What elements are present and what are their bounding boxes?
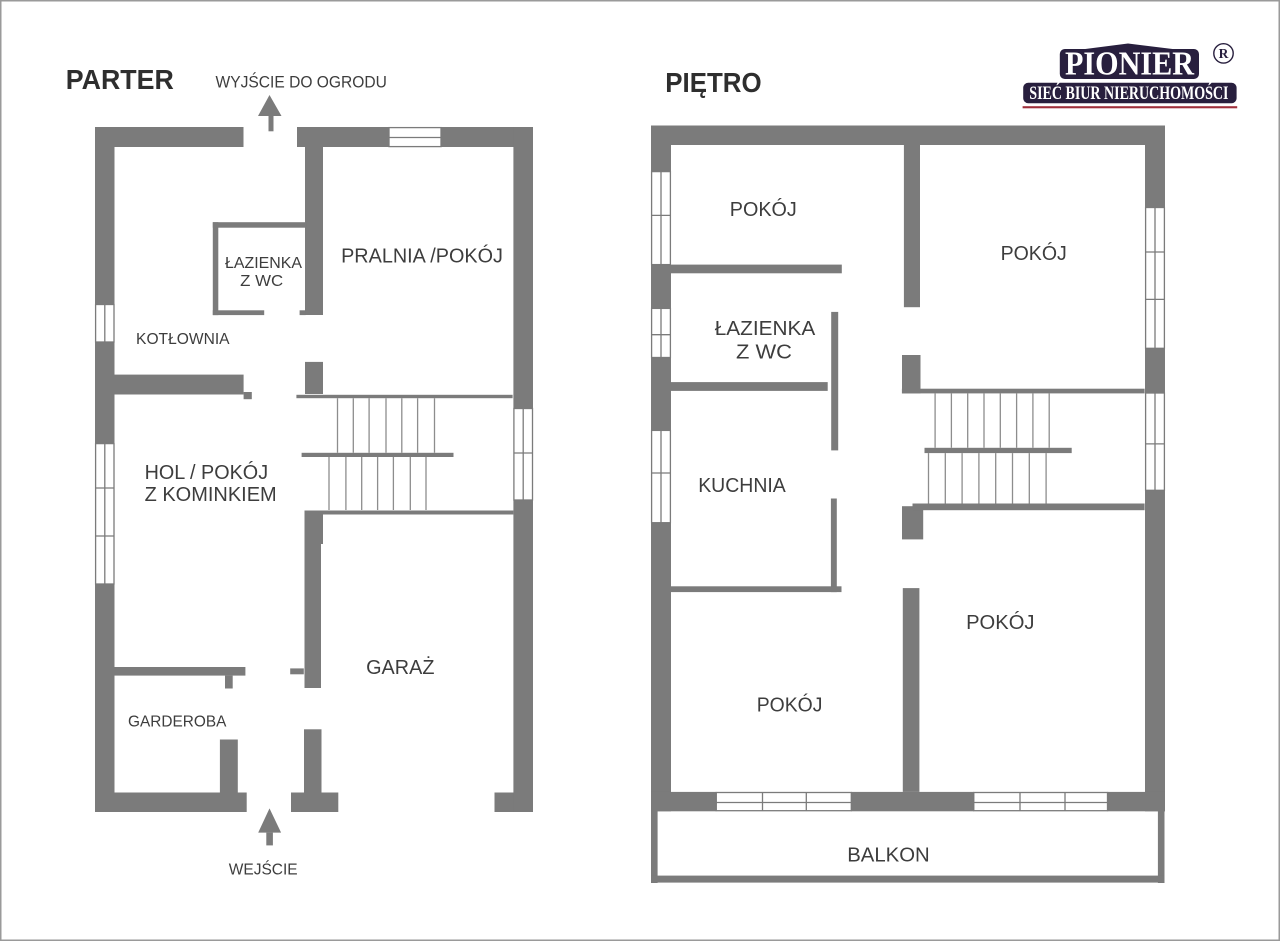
svg-text:WEJŚCIE: WEJŚCIE — [229, 860, 298, 879]
svg-text:ŁAZIENKA: ŁAZIENKA — [715, 318, 816, 340]
svg-text:HOL / POKÓJ: HOL / POKÓJ — [145, 461, 269, 484]
svg-text:PARTER: PARTER — [66, 64, 174, 95]
svg-text:Z KOMINKIEM: Z KOMINKIEM — [145, 484, 277, 506]
svg-text:KUCHNIA: KUCHNIA — [698, 475, 786, 497]
svg-text:GARDEROBA: GARDEROBA — [128, 714, 227, 731]
svg-text:GARAŻ: GARAŻ — [366, 656, 434, 679]
svg-text:SIEĆ BIUR NIERUCHOMOŚCI: SIEĆ BIUR NIERUCHOMOŚCI — [1029, 82, 1228, 104]
svg-text:POKÓJ: POKÓJ — [730, 198, 797, 221]
svg-text:WYJŚCIE DO OGRODU: WYJŚCIE DO OGRODU — [216, 72, 387, 91]
svg-text:POKÓJ: POKÓJ — [1001, 242, 1067, 265]
svg-text:POKÓJ: POKÓJ — [966, 611, 1034, 634]
svg-text:POKÓJ: POKÓJ — [757, 694, 823, 717]
svg-text:PIĘTRO: PIĘTRO — [665, 67, 761, 98]
svg-text:PRALNIA /POKÓJ: PRALNIA /POKÓJ — [341, 244, 503, 267]
svg-text:Z WC: Z WC — [240, 273, 283, 290]
svg-text:ŁAZIENKA: ŁAZIENKA — [225, 255, 303, 272]
svg-text:Z WC: Z WC — [736, 341, 792, 363]
svg-text:BALKON: BALKON — [847, 845, 930, 867]
svg-text:R: R — [1219, 46, 1229, 61]
svg-text:KOTŁOWNIA: KOTŁOWNIA — [136, 331, 230, 348]
svg-text:PIONIER: PIONIER — [1065, 46, 1194, 83]
